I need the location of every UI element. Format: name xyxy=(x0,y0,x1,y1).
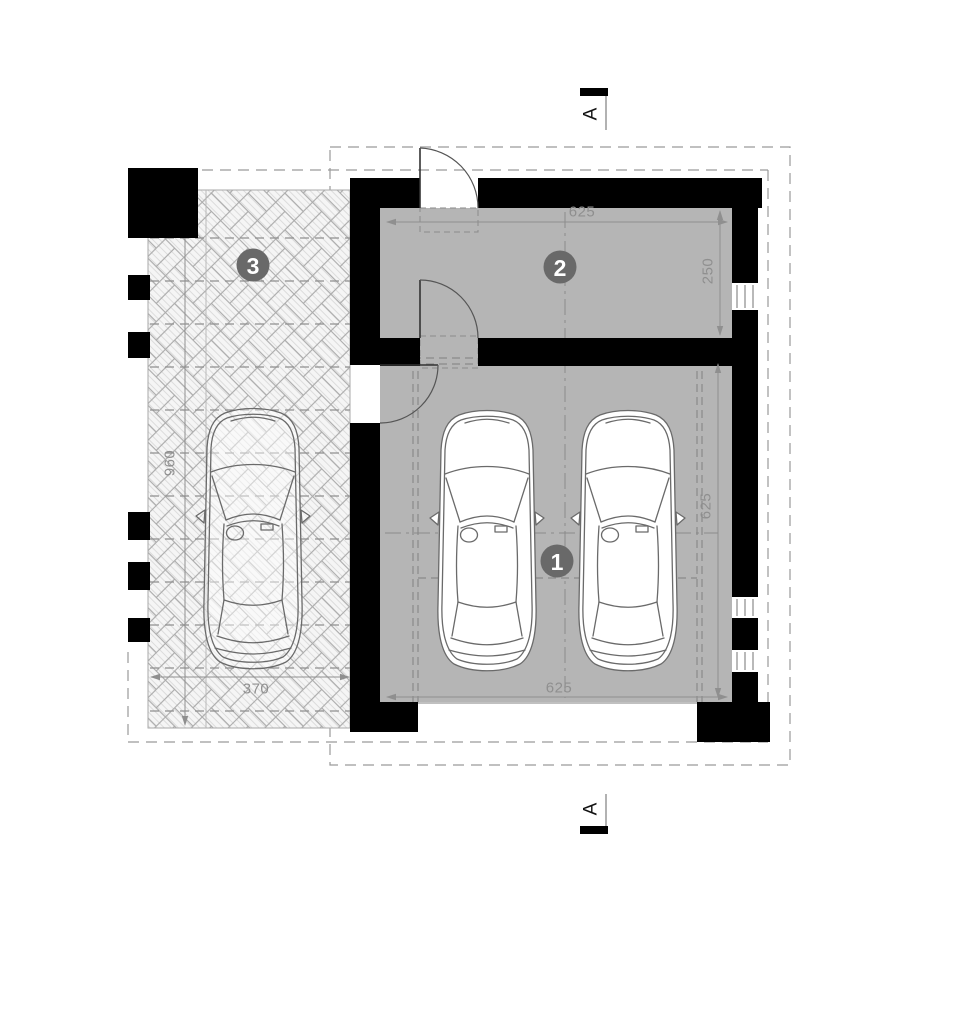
section-marker-bar xyxy=(580,88,608,96)
car-garage-left xyxy=(430,411,544,671)
dim-label-625-bottom: 625 xyxy=(546,680,573,697)
section-letter-bottom: A xyxy=(581,802,602,815)
car-carport xyxy=(196,409,310,669)
corner-pillar xyxy=(128,168,198,238)
entry-door-threshold xyxy=(420,208,478,232)
room1-floor xyxy=(380,366,732,702)
section-marker-bottom: A xyxy=(580,794,608,834)
window-room1-upper xyxy=(737,599,753,616)
dim-label-625-right: 625 xyxy=(698,493,715,520)
floor-plan-drawing: 960 370 3 xyxy=(0,0,956,1014)
dim-label-960: 960 xyxy=(162,450,179,477)
window-room2 xyxy=(737,285,753,308)
room-number-2: 2 xyxy=(554,255,567,281)
room-label-3: 3 xyxy=(237,249,270,282)
room-label-2: 2 xyxy=(544,251,577,284)
room-label-1: 1 xyxy=(541,545,574,578)
entry-door xyxy=(420,148,478,208)
room-number-3: 3 xyxy=(247,253,260,279)
section-letter-top: A xyxy=(581,107,602,120)
carport-area: 960 370 3 xyxy=(128,168,350,728)
dim-label-250: 250 xyxy=(700,258,717,285)
section-marker-top: A xyxy=(580,88,608,130)
car-garage-right xyxy=(571,411,685,671)
floor-plan-sheet: 960 370 3 xyxy=(0,0,956,1014)
section-marker-bar xyxy=(580,826,608,834)
interior-door-threshold xyxy=(420,336,478,368)
room-number-1: 1 xyxy=(551,549,564,575)
dim-label-370: 370 xyxy=(243,681,270,698)
window-room1-lower xyxy=(737,652,753,670)
dim-label-625-top: 625 xyxy=(569,204,596,221)
